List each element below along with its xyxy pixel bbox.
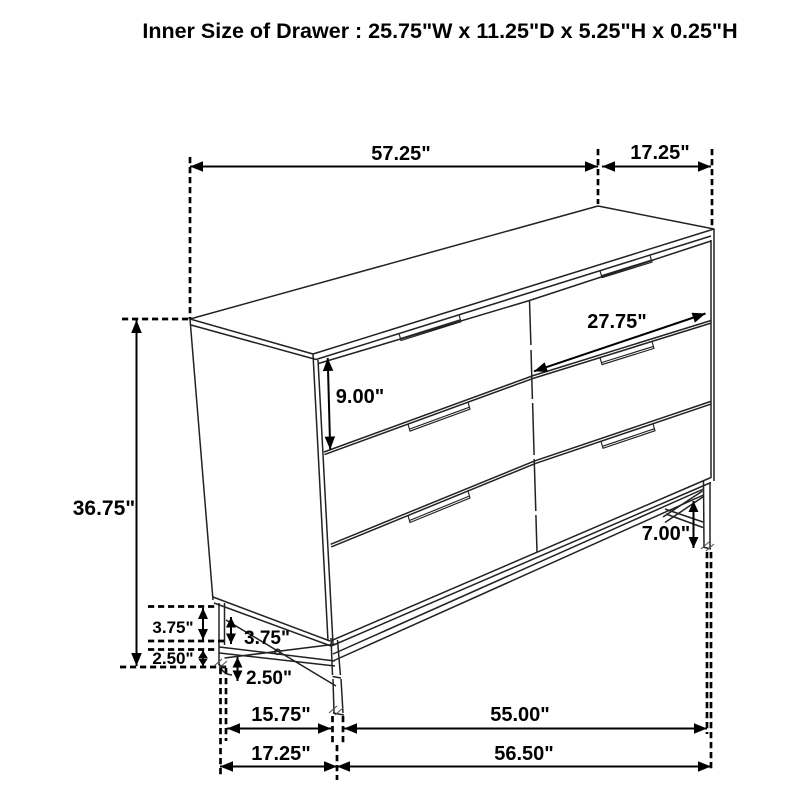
svg-text:7.00": 7.00" [642, 523, 690, 545]
svg-text:Inner Size of Drawer : 25.75"W: Inner Size of Drawer : 25.75"W x 11.25"D… [142, 19, 737, 43]
svg-text:55.00": 55.00" [490, 704, 550, 726]
svg-text:36.75": 36.75" [73, 497, 136, 520]
svg-text:17.25": 17.25" [630, 142, 690, 164]
svg-text:17.25": 17.25" [251, 743, 311, 765]
svg-text:57.25": 57.25" [371, 143, 431, 165]
svg-text:3.75": 3.75" [244, 628, 290, 649]
svg-text:56.50": 56.50" [494, 743, 554, 765]
svg-text:27.75": 27.75" [587, 311, 647, 333]
svg-text:2.50": 2.50" [246, 668, 292, 689]
svg-text:2.50": 2.50" [152, 649, 193, 668]
svg-text:15.75": 15.75" [251, 704, 311, 726]
svg-text:3.75": 3.75" [152, 618, 193, 637]
svg-text:9.00": 9.00" [336, 386, 384, 408]
